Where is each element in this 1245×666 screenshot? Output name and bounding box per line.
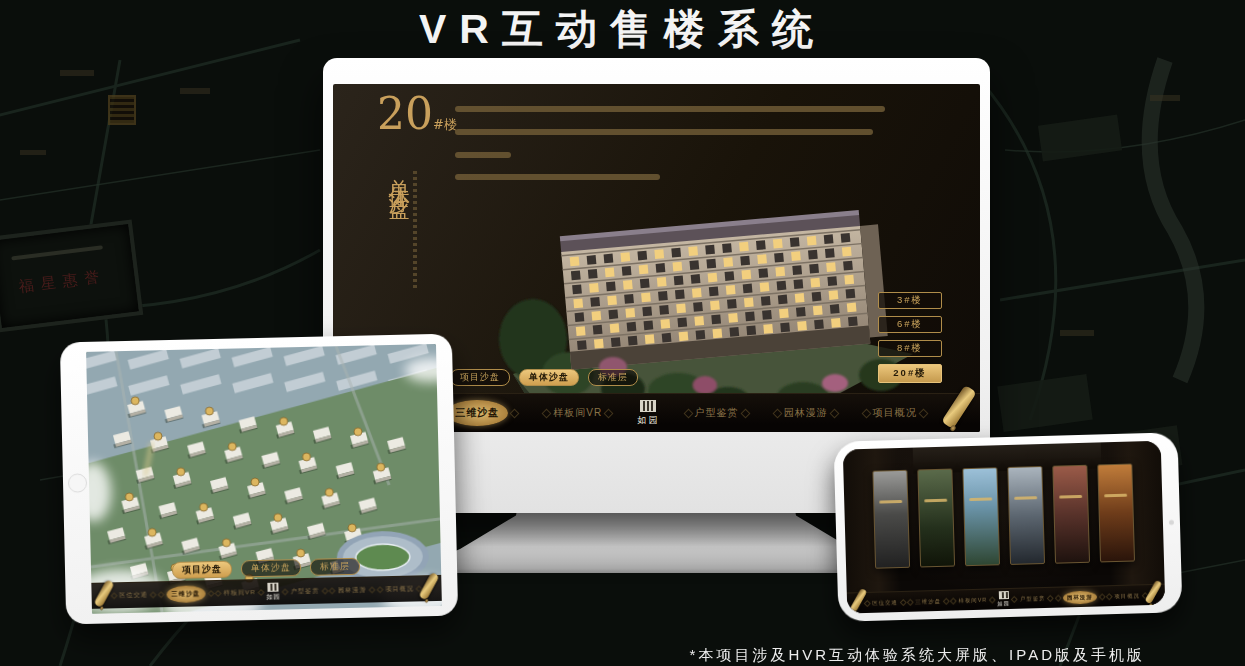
diamond-ornament-icon — [1106, 593, 1112, 599]
scroll-icon[interactable] — [941, 385, 977, 430]
building-marker[interactable] — [251, 478, 259, 486]
brand-logo-text: 如园 — [266, 593, 280, 602]
panel-caption-deco — [1059, 495, 1082, 499]
tablet-ui-overlay: 项目沙盘单体沙盘标准层 区位交通三维沙盘样板间VR如园户型鉴赏园林漫游项目概况 — [91, 556, 442, 609]
tab-项目沙盘[interactable]: 项目沙盘 — [172, 561, 232, 579]
nav-item-户型鉴赏[interactable]: 户型鉴赏 — [685, 406, 749, 420]
diamond-ornament-icon — [861, 408, 871, 418]
tab-单体沙盘[interactable]: 单体沙盘 — [241, 559, 301, 577]
nav-item-label: 园林漫游 — [338, 586, 367, 596]
diamond-ornament-icon — [207, 590, 214, 597]
panel-caption-deco — [879, 500, 902, 504]
footnote: *本项目涉及HVR互动体验系统大屏版、IPAD版及手机版 — [690, 646, 1145, 665]
plaque-caption-line — [11, 245, 103, 260]
nav-item-项目概况[interactable]: 项目概况 — [1107, 592, 1148, 600]
building-number: 20 — [377, 88, 433, 139]
nav-item-label: 样板间VR — [958, 596, 987, 604]
nav-item-label: 园林漫游 — [784, 406, 828, 420]
diamond-ornament-icon — [1011, 596, 1017, 602]
tab-标准层[interactable]: 标准层 — [588, 369, 638, 386]
brand-seal-icon — [268, 583, 279, 592]
panorama-panel[interactable] — [872, 470, 910, 569]
diamond-ornament-icon — [282, 588, 289, 595]
diamond-ornament-icon — [321, 587, 328, 594]
nav-item-label: 项目概况 — [385, 585, 414, 595]
diamond-ornament-icon — [772, 408, 782, 418]
diamond-ornament-icon — [369, 586, 376, 593]
description-text-line — [455, 129, 873, 135]
subtitle-english-deco — [413, 168, 417, 288]
nav-item-样板间VR[interactable]: 样板间VR — [543, 406, 612, 420]
nav-item-label: 样板间VR — [223, 588, 255, 598]
diamond-ornament-icon — [110, 592, 117, 599]
panorama-panel[interactable] — [1007, 466, 1045, 565]
panel-caption-deco — [1014, 496, 1037, 500]
diamond-ornament-icon — [900, 599, 906, 605]
diamond-ornament-icon — [376, 586, 383, 593]
nav-item-园林漫游[interactable]: 园林漫游 — [774, 406, 838, 420]
diamond-ornament-icon — [150, 591, 157, 598]
description-text-line — [455, 106, 885, 112]
phone-camera-icon — [1169, 520, 1174, 525]
diamond-ornament-icon — [907, 599, 913, 605]
building-marker[interactable] — [377, 463, 385, 471]
diamond-ornament-icon — [604, 408, 614, 418]
nav-item-label: 户型鉴赏 — [695, 406, 739, 420]
building-marker[interactable] — [125, 493, 133, 501]
monitor-tab-group: 项目沙盘单体沙盘标准层 — [450, 369, 638, 386]
nav-item-label: 三维沙盘 — [166, 585, 205, 603]
diamond-ornament-icon — [1099, 593, 1105, 599]
nav-item-园林漫游[interactable]: 园林漫游 — [330, 585, 375, 595]
plaque-seal-text: 福星惠誉 — [18, 267, 108, 297]
diamond-ornament-icon — [329, 587, 336, 594]
panorama-panel[interactable] — [917, 469, 955, 568]
brand-seal-icon — [998, 591, 1008, 599]
building-heading: 20#楼 — [377, 92, 457, 136]
building-marker[interactable] — [354, 428, 362, 436]
nav-item-园林漫游[interactable]: 园林漫游 — [1055, 590, 1104, 604]
building-marker[interactable] — [205, 407, 213, 415]
tablet-home-button[interactable] — [68, 473, 87, 492]
tab-标准层[interactable]: 标准层 — [310, 558, 360, 576]
nav-item-label: 园林漫游 — [1063, 590, 1097, 604]
nav-item-三维沙盘[interactable]: 三维沙盘 — [908, 597, 949, 605]
nav-item-label: 项目概况 — [873, 406, 917, 420]
building-marker[interactable] — [325, 488, 333, 496]
poster-stage: 福星惠誉 VR互动售楼系统 20#楼 单体沙盘 — [0, 0, 1245, 666]
building-marker[interactable] — [177, 468, 185, 476]
panorama-panel[interactable] — [1052, 465, 1090, 564]
brand-logo: 如园 — [266, 583, 280, 602]
tab-项目沙盘[interactable]: 项目沙盘 — [450, 369, 510, 386]
nav-item-label: 区位交通 — [119, 591, 148, 601]
diamond-ornament-icon — [1048, 595, 1054, 601]
nav-item-项目概况[interactable]: 项目概况 — [377, 584, 422, 594]
nav-item-区位交通[interactable]: 区位交通 — [111, 590, 156, 600]
diamond-ornament-icon — [258, 589, 265, 596]
diamond-ornament-icon — [864, 600, 870, 606]
nav-item-区位交通[interactable]: 区位交通 — [865, 598, 906, 606]
diamond-ornament-icon — [950, 597, 956, 603]
background-plaque: 福星惠誉 — [0, 219, 143, 332]
building-render — [473, 139, 933, 432]
nav-item-样板间VR[interactable]: 样板间VR — [951, 596, 995, 604]
nav-item-样板间VR[interactable]: 样板间VR — [215, 588, 263, 598]
diamond-ornament-icon — [510, 408, 520, 418]
building-marker[interactable] — [274, 513, 282, 521]
nav-item-label: 户型鉴赏 — [291, 587, 320, 597]
panorama-panel[interactable] — [962, 467, 1000, 566]
panel-caption-deco — [969, 497, 992, 501]
nav-item-label: 区位交通 — [872, 599, 898, 607]
tab-单体沙盘[interactable]: 单体沙盘 — [519, 369, 579, 386]
brand-logo: 如园 — [997, 591, 1010, 607]
diamond-ornament-icon — [215, 590, 222, 597]
building-marker[interactable] — [131, 397, 139, 405]
panel-caption-deco — [924, 498, 947, 502]
diamond-ornament-icon — [918, 408, 928, 418]
building-marker[interactable] — [348, 524, 356, 532]
floor-button-6#楼[interactable]: 6#楼 — [878, 316, 942, 333]
floor-button-20#楼[interactable]: 20#楼 — [878, 364, 942, 383]
panel-caption-deco — [1104, 493, 1127, 497]
nav-item-label: 项目概况 — [1114, 592, 1140, 600]
brand-seal-icon — [640, 400, 656, 412]
nav-item-项目概况[interactable]: 项目概况 — [863, 406, 927, 420]
background-emblem-icon — [108, 95, 136, 125]
nav-item-label: 户型鉴赏 — [1020, 594, 1046, 602]
panorama-panel[interactable] — [1097, 464, 1135, 563]
building-marker[interactable] — [302, 453, 310, 461]
tablet-screen: 项目沙盘单体沙盘标准层 区位交通三维沙盘样板间VR如园户型鉴赏园林漫游项目概况 — [86, 344, 442, 614]
building-marker[interactable] — [280, 417, 288, 425]
building-subtitle: 单体沙盘 — [385, 162, 413, 190]
phone-screen: 区位交通三维沙盘样板间VR如园户型鉴赏园林漫游项目概况 — [843, 441, 1165, 614]
diamond-ornament-icon — [943, 598, 949, 604]
nav-item-label: 三维沙盘 — [915, 597, 941, 605]
floor-button-8#楼[interactable]: 8#楼 — [878, 340, 942, 357]
floor-button-group: 3#楼6#楼8#楼20#楼 — [878, 292, 942, 383]
page-title: VR互动售楼系统 — [0, 2, 1245, 57]
brand-logo: 如园 — [637, 400, 659, 427]
building-marker[interactable] — [222, 539, 230, 547]
panorama-panel-strip — [872, 464, 1135, 569]
nav-item-户型鉴赏[interactable]: 户型鉴赏 — [1012, 594, 1053, 602]
diamond-ornament-icon — [740, 408, 750, 418]
nav-item-label: 三维沙盘 — [446, 400, 508, 426]
nav-item-户型鉴赏[interactable]: 户型鉴赏 — [283, 586, 328, 596]
phone-frame: 区位交通三维沙盘样板间VR如园户型鉴赏园林漫游项目概况 — [834, 432, 1183, 622]
building-marker[interactable] — [297, 549, 305, 557]
building-marker[interactable] — [228, 443, 236, 451]
diamond-ornament-icon — [1055, 594, 1061, 600]
building-marker[interactable] — [200, 503, 208, 511]
building-marker[interactable] — [148, 528, 156, 536]
diamond-ornament-icon — [542, 408, 552, 418]
building-number-suffix: #楼 — [433, 117, 457, 132]
building-marker[interactable] — [154, 432, 162, 440]
brand-logo-text: 如园 — [997, 600, 1010, 607]
diamond-ornament-icon — [683, 408, 693, 418]
tablet-frame: 项目沙盘单体沙盘标准层 区位交通三维沙盘样板间VR如园户型鉴赏园林漫游项目概况 — [60, 334, 458, 625]
diamond-ornament-icon — [989, 596, 995, 602]
floor-button-3#楼[interactable]: 3#楼 — [878, 292, 942, 309]
diamond-ornament-icon — [829, 408, 839, 418]
diamond-ornament-icon — [157, 591, 164, 598]
nav-item-label: 样板间VR — [553, 406, 602, 420]
nav-item-三维沙盘[interactable]: 三维沙盘 — [158, 585, 213, 603]
brand-logo-text: 如园 — [637, 414, 659, 427]
